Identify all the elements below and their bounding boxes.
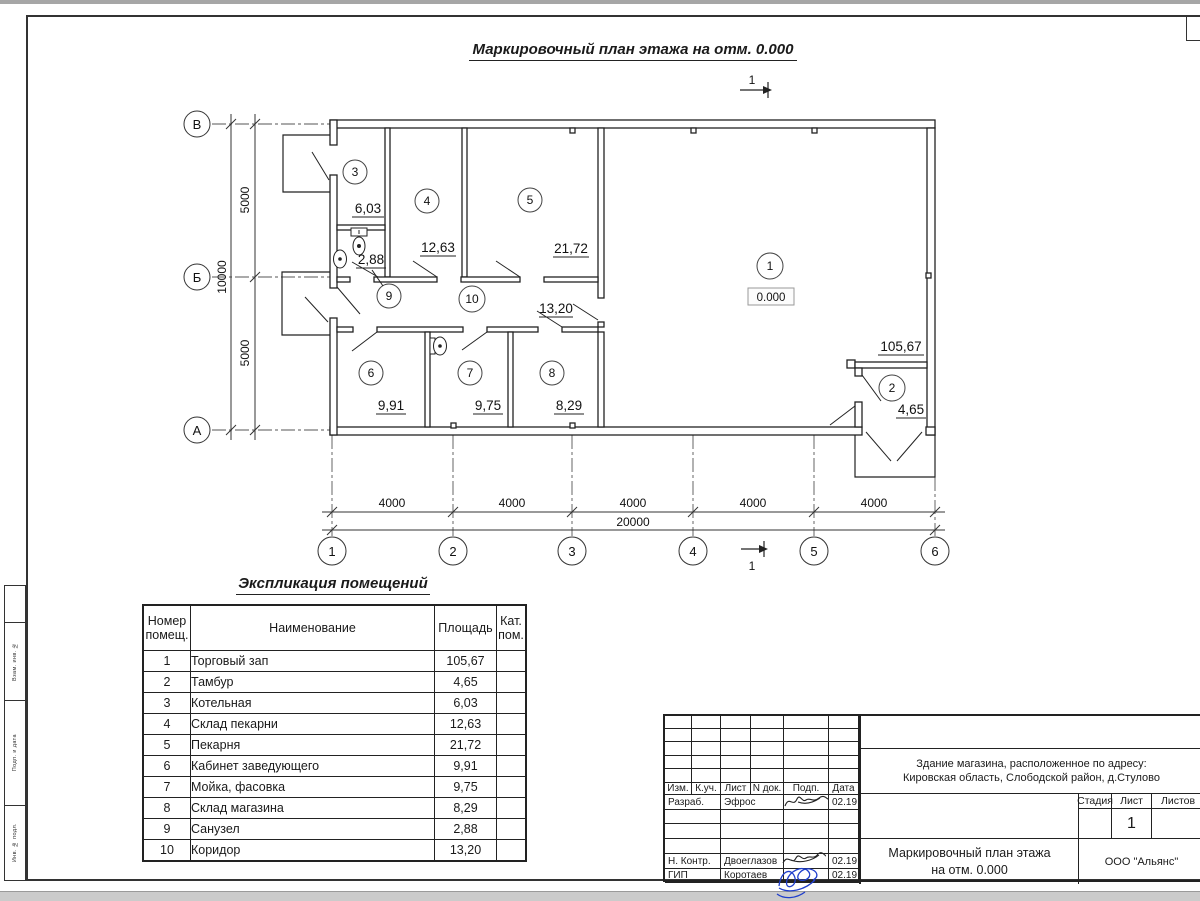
table-row: 5Пекарня21,72	[143, 735, 526, 756]
sheet-number: 1	[1112, 809, 1152, 839]
dim-label: 4000	[861, 496, 888, 510]
room-number: 1	[767, 259, 774, 273]
washbasin-icon	[334, 250, 347, 268]
dim-label: 20000	[616, 515, 650, 529]
room-area: 21,72	[554, 241, 588, 256]
section-mark-bottom: 1	[741, 541, 768, 573]
tb-header-cell: К.уч.	[692, 783, 721, 795]
axis-label: 5	[810, 544, 817, 559]
room-number: 3	[352, 165, 359, 179]
room-number: 6	[368, 366, 375, 380]
axis-label: 2	[449, 544, 456, 559]
porches	[282, 135, 935, 477]
axis-label: 6	[931, 544, 938, 559]
section-mark-top: 1	[740, 73, 772, 98]
room-number: 9	[386, 289, 393, 303]
room-number: 10	[465, 292, 479, 306]
axis-label: В	[193, 117, 202, 132]
washbasin-icon	[430, 337, 447, 355]
room-area: 12,63	[421, 240, 455, 255]
left-dimension-labels: 5000 5000 10000	[215, 186, 252, 366]
room-area: 9,91	[378, 398, 404, 413]
tb-name: Эфрос	[721, 795, 784, 810]
room-area: 6,03	[355, 201, 381, 216]
axis-label: 3	[568, 544, 575, 559]
room-area: 4,65	[898, 402, 924, 417]
schedule-header-row: Номер помещ. Наименование Площадь Кат. п…	[143, 605, 526, 651]
axis-labels: В Б А 1 2 3 4 5 6	[193, 117, 939, 559]
section-label: 1	[749, 73, 756, 87]
room-number: 7	[467, 366, 474, 380]
table-row: 6Кабинет заведующего9,91	[143, 756, 526, 777]
dim-label: 4000	[620, 496, 647, 510]
tb-header-cell: Подп.	[784, 783, 829, 795]
room-area: 8,29	[556, 398, 582, 413]
dim-label: 4000	[499, 496, 526, 510]
title-block: Изм. К.уч. Лист N док. Подп. Дата Разраб…	[663, 714, 1200, 882]
room-number: 2	[889, 381, 896, 395]
axis-label: А	[193, 423, 202, 438]
building-walls	[330, 120, 935, 435]
tb-role: Н. Контр.	[665, 854, 721, 869]
table-row: 9Санузел2,88	[143, 819, 526, 840]
schedule-title: Экспликация помещений	[223, 575, 443, 592]
tb-role: ГИП	[665, 869, 721, 883]
tb-date: 02.19	[829, 795, 859, 810]
dim-label: 5000	[238, 339, 252, 366]
sheets-label: Листов	[1152, 794, 1200, 809]
table-row: 3Котельная6,03	[143, 693, 526, 714]
dim-label: 5000	[238, 186, 252, 213]
tb-header-cell: Лист	[721, 783, 751, 795]
door-swings	[305, 152, 922, 461]
room-area: 9,75	[475, 398, 501, 413]
dim-label: 4000	[379, 496, 406, 510]
room-number: 8	[549, 366, 556, 380]
table-row: 8Склад магазина8,29	[143, 798, 526, 819]
axis-label: 1	[328, 544, 335, 559]
toilet-icon	[351, 228, 367, 255]
room-area: 105,67	[880, 339, 921, 354]
dim-label: 4000	[740, 496, 767, 510]
col-header-name: Наименование	[191, 605, 435, 651]
tb-date: 02.19	[829, 869, 859, 883]
tb-name: Двоеглазов	[721, 854, 784, 869]
tb-signature-cell	[784, 869, 829, 883]
axis-label: 4	[689, 544, 696, 559]
company-name: ООО "Альянс"	[1079, 839, 1200, 884]
tb-header-cell: Дата	[829, 783, 859, 795]
tb-signature-cell	[784, 854, 829, 869]
col-header-number: Номер помещ.	[143, 605, 191, 651]
axis-label: Б	[193, 270, 202, 285]
section-label: 1	[749, 559, 756, 573]
tb-date: 02.19	[829, 854, 859, 869]
tb-signature-cell	[784, 795, 829, 810]
col-header-cat: Кат. пом.	[497, 605, 527, 651]
tb-name: Коротаев	[721, 869, 784, 883]
table-row: 2Тамбур4,65	[143, 672, 526, 693]
project-address: Здание магазина, расположенное по адресу…	[861, 749, 1200, 794]
document-title: Маркировочный план этажа на отм. 0.000	[861, 839, 1078, 884]
room-number: 4	[424, 194, 431, 208]
table-row: 10Коридор13,20	[143, 840, 526, 862]
tb-header-cell: Изм.	[665, 783, 692, 795]
axis-bubbles	[184, 111, 949, 565]
room-number: 5	[527, 193, 534, 207]
room-area: 13,20	[539, 301, 573, 316]
sheet-label: Лист	[1112, 794, 1152, 809]
table-row: 7Мойка, фасовка9,75	[143, 777, 526, 798]
room-schedule-table: Номер помещ. Наименование Площадь Кат. п…	[142, 604, 527, 862]
room-area: 2,88	[358, 252, 384, 267]
tb-header-cell: N док.	[751, 783, 784, 795]
titleblock-sign-grid: Разраб. Эфрос 02.19 Н. Контр. Двоеглазов…	[665, 795, 859, 884]
table-row: 1Торговый зап105,67	[143, 651, 526, 672]
table-row: 4Склад пекарни12,63	[143, 714, 526, 735]
elevation-value: 0.000	[757, 292, 786, 304]
tb-role: Разраб.	[665, 795, 721, 810]
titleblock-change-grid: Изм. К.уч. Лист N док. Подп. Дата	[665, 716, 859, 795]
titleblock-right: Здание магазина, расположенное по адресу…	[859, 716, 1200, 884]
dim-label: 10000	[215, 260, 229, 294]
col-header-area: Площадь	[435, 605, 497, 651]
room-areas: 105,67 4,65 6,03 12,63 21,72 9,91 9,75 8…	[355, 201, 924, 417]
stage-label: Стадия	[1079, 794, 1112, 809]
elevation-mark: 0.000	[748, 288, 794, 305]
